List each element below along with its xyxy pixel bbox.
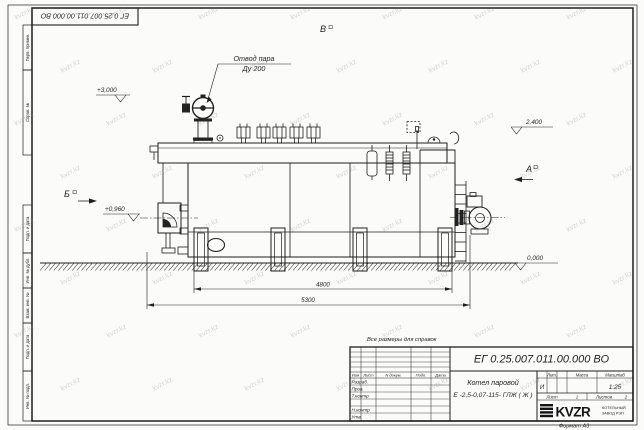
gauge-fittings	[367, 122, 459, 182]
steam-drum	[158, 143, 447, 163]
mass-header: Масса	[576, 373, 589, 378]
view-markers: В Б А	[64, 24, 537, 204]
logo-caption2: ЗАВОД РЭП	[602, 412, 624, 416]
view-label-right: А	[525, 164, 532, 174]
burner-unit	[450, 193, 505, 235]
col-list: Лист	[362, 373, 374, 378]
col-data: Дата	[434, 373, 446, 378]
dim-inner-value: 4800	[316, 282, 330, 289]
ground-line	[40, 263, 518, 271]
view-label-left: Б	[64, 189, 70, 199]
margin-column: Перв. примен. Справ. № Подп. и дата Инв.…	[23, 25, 32, 421]
scale-value: 1:25	[609, 384, 622, 391]
elevation-marks: +3,000 2,400 +0,960 0,000	[96, 87, 558, 270]
elevation-valve-top: +3,000	[96, 87, 130, 102]
margin-label: Перв. примен.	[25, 34, 30, 62]
format-note: Формат А3	[559, 424, 590, 430]
row-prov: Пров.	[352, 387, 364, 392]
callout-line2: Ду 200	[242, 64, 266, 73]
doc-number: ЕГ 0.25.007.011.00.000 ВО	[474, 354, 610, 366]
dimension-5300: 5300	[147, 235, 470, 309]
col-podp: Подп.	[416, 373, 427, 378]
sheets-value: 2	[624, 395, 628, 400]
view-label-top: В	[320, 24, 326, 34]
elevation-ground: 0,000	[515, 255, 558, 270]
elevation-value: +0,960	[105, 206, 125, 213]
kvzr-logo: KVZR КОТЕЛЬНЫЙ ЗАВОД РЭП	[540, 404, 626, 420]
top-hatches	[237, 124, 320, 144]
product-name-line2: Е -2,5-0,07-115- ГЛЖ ( Ж )	[453, 392, 532, 399]
logo-bars-icon	[540, 404, 553, 406]
engineering-drawing: ЕГ 0.25.007.011.00.000 ВО Перв. примен. …	[0, 0, 644, 430]
margin-label: Взам. инв. №	[25, 292, 30, 318]
row-utv: Утв.	[352, 415, 362, 420]
logo-caption1: КОТЕЛЬНЫЙ	[602, 406, 626, 410]
boiler-side-view	[140, 95, 505, 272]
top-stamp-number: ЕГ 0.25.007.011.00.000 ВО	[40, 12, 129, 21]
elevation-value: +3,000	[97, 87, 117, 94]
margin-label: Подп. и дата	[25, 216, 30, 241]
row-tkontr: Т.контр	[352, 394, 370, 399]
product-name-line1: Котел паровой	[467, 378, 519, 387]
reference-note: Все размеры для справок	[367, 337, 437, 343]
logo-text: KVZR	[556, 405, 592, 420]
lit-header: Лит.	[546, 373, 557, 378]
row-nkontr: Н.контр	[352, 408, 371, 413]
elevation-drum-top: 2,400	[511, 119, 553, 134]
sheet-label: Лист	[545, 395, 558, 400]
sheets-label: Листов	[595, 395, 613, 400]
margin-label: Инв. № дубл.	[25, 258, 30, 284]
sheet-value: 1	[576, 395, 579, 400]
scale-header: Масштаб	[605, 373, 625, 378]
top-stamp: ЕГ 0.25.007.011.00.000 ВО	[32, 8, 138, 25]
callout-line1: Отвод пара	[233, 54, 274, 63]
dimensions: 4800 5300	[147, 235, 470, 309]
title-block: ЕГ 0.25.007.011.00.000 ВО Котел паровой …	[350, 347, 633, 421]
margin-label: Справ. №	[25, 102, 30, 122]
margin-label: Инв. № подл.	[25, 383, 30, 409]
drawing-sheet: ЕГ 0.25.007.011.00.000 ВО Перв. примен. …	[0, 0, 644, 430]
elevation-burner-axis: +0,960	[103, 206, 140, 221]
elevation-value: 0,000	[527, 255, 543, 262]
col-izm: Изм	[352, 373, 360, 378]
dim-overall-value: 5300	[301, 297, 315, 304]
steam-outlet-valve	[182, 95, 214, 144]
elevation-value: 2,400	[525, 119, 542, 126]
row-razrab: Разраб.	[352, 380, 369, 385]
lit-value: И	[540, 385, 545, 391]
steam-callout: Отвод пара Ду 200	[207, 54, 292, 103]
col-ndoc: N докум.	[385, 373, 401, 378]
manhole	[208, 239, 225, 252]
margin-label: Подп. и дата	[25, 334, 30, 359]
boiler-shell	[188, 163, 455, 257]
